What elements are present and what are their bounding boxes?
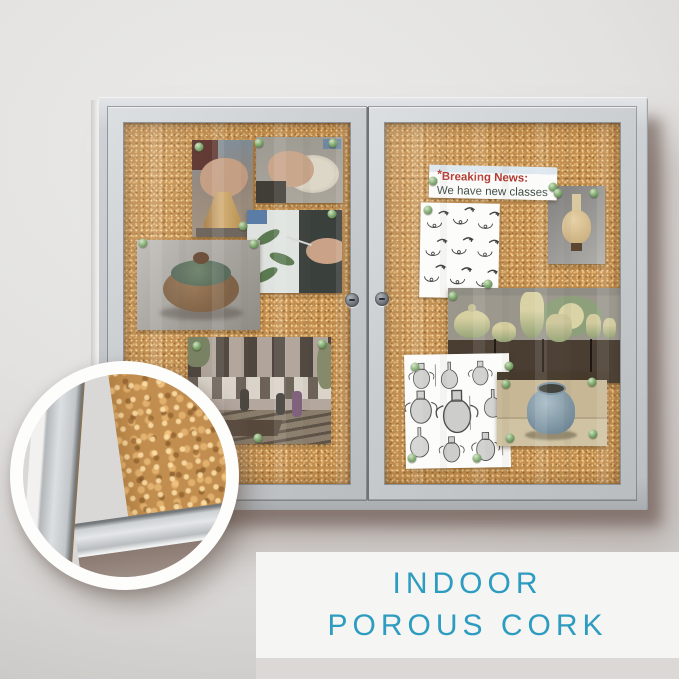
- small-pitcher-shape: [603, 318, 616, 338]
- push-pin-icon: [505, 362, 514, 371]
- pitcher-shape: [546, 314, 572, 342]
- sheet-amphora-etchings: [404, 353, 511, 469]
- photo-lidded-pot: [137, 240, 260, 330]
- caption-line-2: POROUS CORK: [327, 608, 607, 644]
- caption-line-1: INDOOR: [393, 566, 543, 602]
- push-pin-icon: [429, 177, 438, 186]
- pot-rim-shape: [539, 384, 564, 393]
- push-pin-icon: [239, 222, 248, 231]
- push-pin-icon: [193, 342, 202, 351]
- push-pin-icon: [139, 239, 148, 248]
- push-pin-icon: [554, 189, 563, 198]
- push-pin-icon: [449, 292, 458, 301]
- push-pin-icon: [424, 206, 433, 215]
- person-figure: [276, 393, 285, 415]
- amphora-etchings: [404, 353, 511, 469]
- cork-surface-right: *Breaking News: We have new classes: [385, 123, 620, 484]
- push-pin-icon: [328, 210, 337, 219]
- teapot-shape: [454, 310, 490, 338]
- board-door-right: *Breaking News: We have new classes: [369, 107, 636, 500]
- push-pin-icon: [484, 280, 493, 289]
- blue-detail-shape: [247, 210, 267, 224]
- right-door-lock-icon: [375, 292, 389, 306]
- left-door-lock-icon: [345, 293, 359, 307]
- push-pin-icon: [588, 378, 597, 387]
- tall-pitcher-shape: [520, 292, 544, 338]
- leaf-motif: [268, 250, 296, 268]
- push-pin-icon: [590, 189, 599, 198]
- push-pin-icon: [254, 434, 263, 443]
- dark-corner-shape: [256, 181, 286, 203]
- push-pin-icon: [255, 139, 264, 148]
- blue-pot-shape: [527, 388, 575, 434]
- photo-glazing: [247, 210, 342, 293]
- magnifier-view: [23, 374, 226, 577]
- cork-detail-magnifier: [10, 361, 239, 590]
- door-divider: [367, 107, 369, 500]
- caption-panel: INDOOR POROUS CORK: [256, 552, 679, 658]
- breaking-news-note: *Breaking News: We have new classes: [429, 165, 558, 201]
- push-pin-icon: [329, 139, 338, 148]
- push-pin-icon: [473, 454, 482, 463]
- push-pin-icon: [589, 430, 598, 439]
- push-pin-icon: [408, 454, 417, 463]
- breaking-news-subtitle: We have new classes: [437, 184, 551, 200]
- push-pin-icon: [411, 363, 420, 372]
- lid-knob-shape: [193, 252, 209, 264]
- teapot-knob-shape: [468, 304, 476, 312]
- push-pin-icon: [506, 434, 515, 443]
- person-figure: [292, 391, 302, 417]
- push-pin-icon: [250, 240, 259, 249]
- vase-body-shape: [562, 210, 591, 244]
- vine-shape: [317, 343, 331, 389]
- product-photo: *Breaking News: We have new classes: [0, 0, 679, 679]
- vase-foot-shape: [571, 243, 582, 251]
- brush-tool-shape: [286, 236, 311, 246]
- push-pin-icon: [502, 380, 511, 389]
- caption-bottom-strip: [256, 658, 679, 679]
- hand-shape: [306, 238, 342, 264]
- magnified-corner-group: [23, 374, 226, 577]
- person-figure: [240, 389, 249, 411]
- push-pin-icon: [318, 340, 327, 349]
- push-pin-icon: [195, 143, 204, 152]
- clay-bell-shape: [204, 192, 242, 228]
- small-pitcher-shape: [586, 314, 601, 338]
